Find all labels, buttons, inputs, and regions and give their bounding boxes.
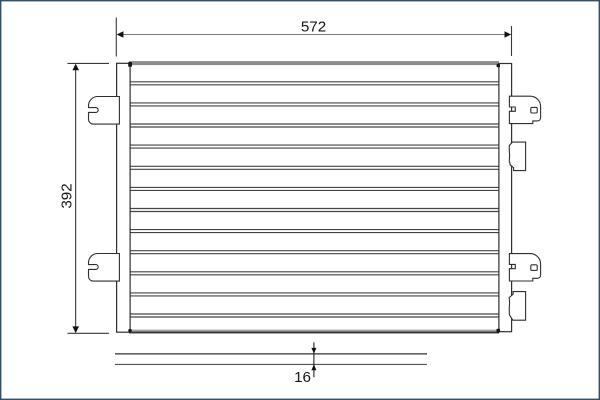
svg-text:572: 572 xyxy=(301,19,326,36)
svg-text:16: 16 xyxy=(294,369,311,386)
svg-text:392: 392 xyxy=(59,183,76,208)
